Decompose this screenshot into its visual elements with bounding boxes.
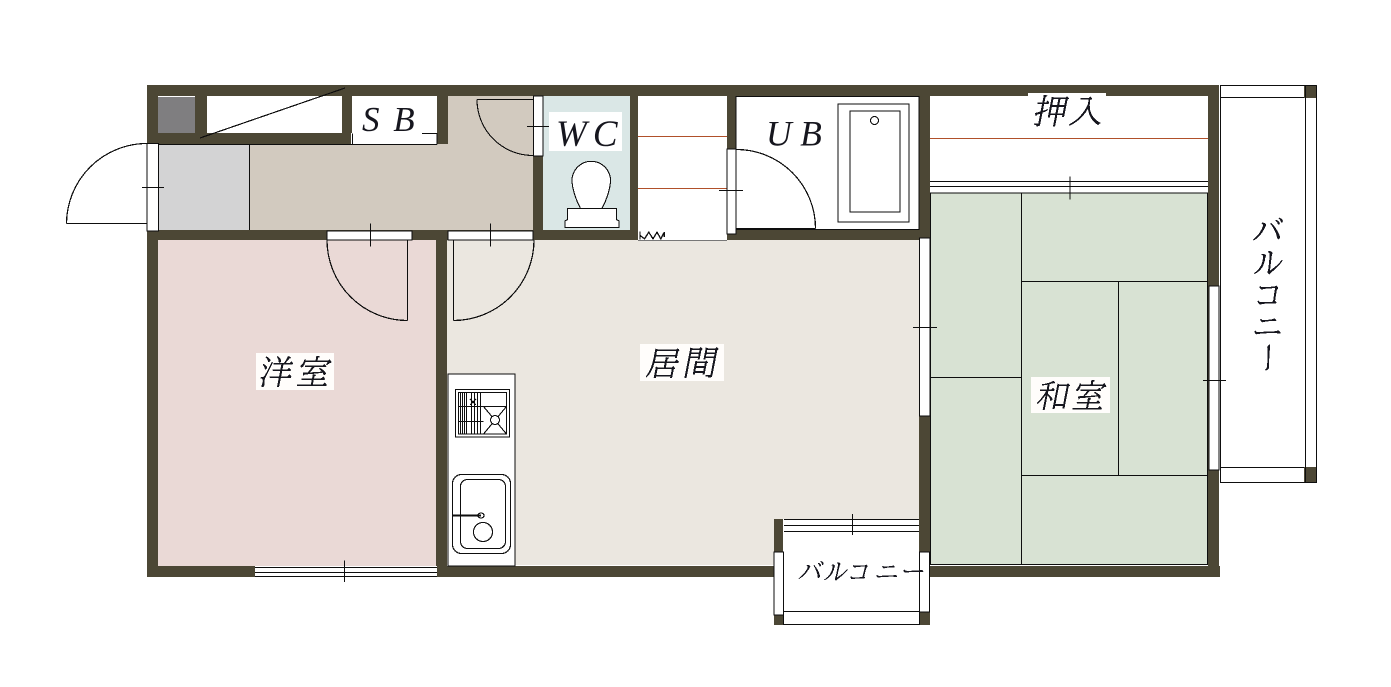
- svg-text:S B: S B: [362, 100, 417, 139]
- svg-text:UB: UB: [766, 114, 830, 154]
- svg-text:WC: WC: [556, 114, 624, 155]
